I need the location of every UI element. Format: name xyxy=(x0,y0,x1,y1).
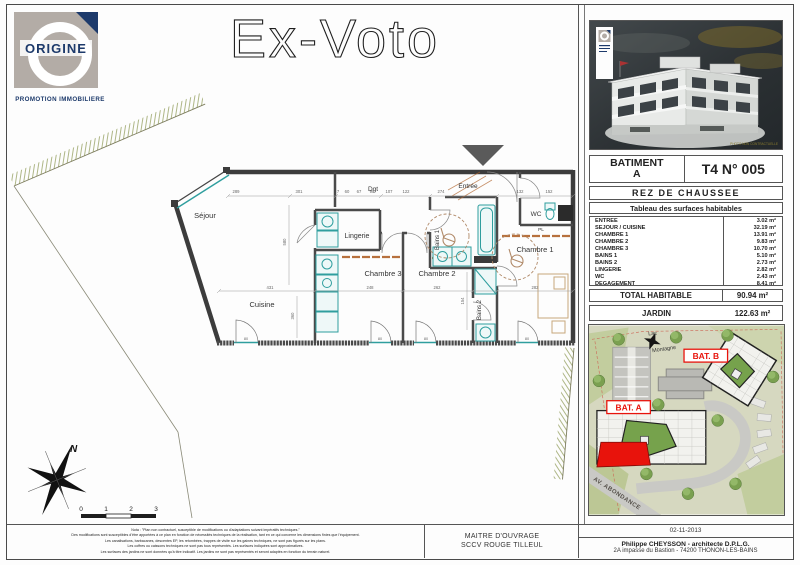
sheet-border xyxy=(6,4,794,560)
plan-sheet: Séjour Dgt Entrée Lingerie WC Chambre 3 … xyxy=(0,0,800,565)
